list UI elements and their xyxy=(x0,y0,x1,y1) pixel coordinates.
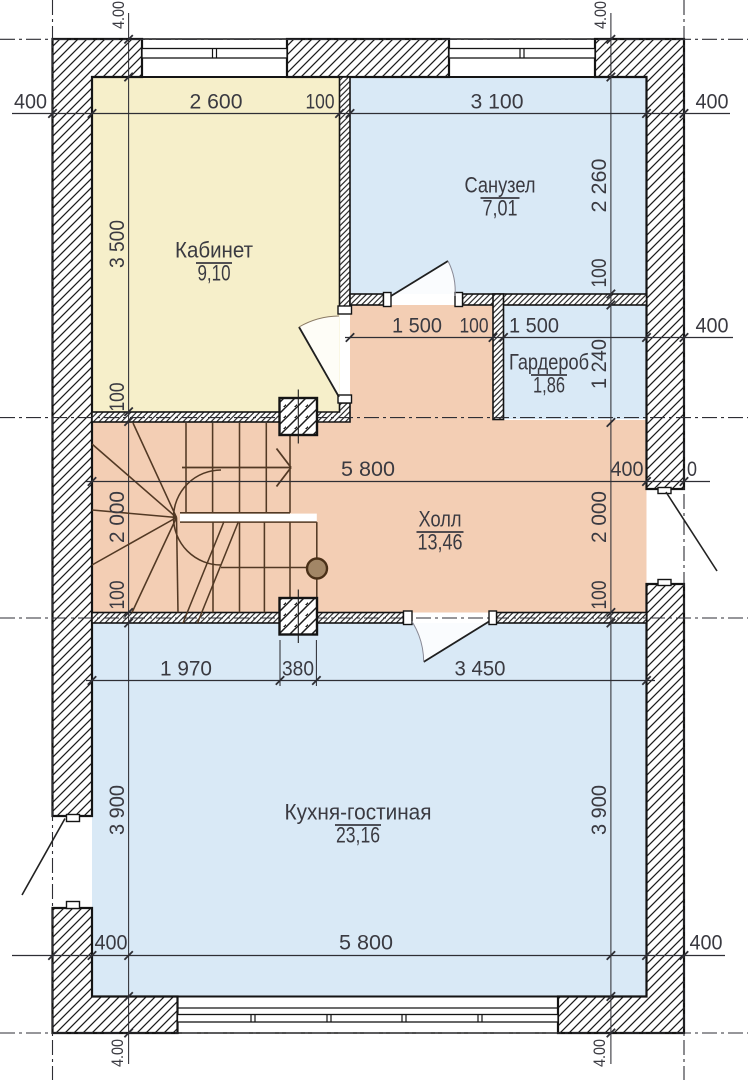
svg-text:100: 100 xyxy=(106,383,129,412)
svg-text:2 260: 2 260 xyxy=(588,159,611,213)
svg-text:1,86: 1,86 xyxy=(533,373,565,398)
svg-text:380: 380 xyxy=(282,658,314,681)
svg-text:400: 400 xyxy=(690,932,723,955)
svg-text:1 970: 1 970 xyxy=(160,658,212,681)
svg-text:3 900: 3 900 xyxy=(588,785,611,835)
svg-text:100: 100 xyxy=(588,259,611,288)
svg-text:3 450: 3 450 xyxy=(455,658,506,681)
svg-text:400: 400 xyxy=(95,932,128,955)
svg-text:9,10: 9,10 xyxy=(198,261,231,286)
svg-text:400: 400 xyxy=(611,458,644,481)
svg-text:0: 0 xyxy=(687,458,697,481)
svg-text:1 500: 1 500 xyxy=(509,315,559,338)
svg-text:3 900: 3 900 xyxy=(106,785,129,835)
svg-text:4.00: 4.00 xyxy=(108,1039,127,1067)
svg-text:Кухня-гостиная: Кухня-гостиная xyxy=(285,800,432,825)
svg-text:1 240: 1 240 xyxy=(588,339,611,389)
svg-text:5 800: 5 800 xyxy=(341,458,395,481)
svg-text:400: 400 xyxy=(696,315,729,338)
svg-text:4.00: 4.00 xyxy=(591,1,610,29)
svg-text:3 100: 3 100 xyxy=(471,91,524,114)
svg-text:Кабинет: Кабинет xyxy=(175,238,253,263)
svg-text:100: 100 xyxy=(588,581,611,610)
svg-text:23,16: 23,16 xyxy=(336,823,380,848)
svg-text:7,01: 7,01 xyxy=(483,196,518,221)
svg-text:4.00: 4.00 xyxy=(109,1,128,29)
svg-text:2 600: 2 600 xyxy=(190,91,243,114)
svg-text:100: 100 xyxy=(306,91,335,114)
svg-text:13,46: 13,46 xyxy=(418,530,463,555)
svg-text:400: 400 xyxy=(14,91,47,114)
svg-text:100: 100 xyxy=(460,315,489,338)
svg-text:3 500: 3 500 xyxy=(106,220,129,268)
svg-text:Холл: Холл xyxy=(419,507,462,532)
svg-text:4.00: 4.00 xyxy=(590,1039,609,1067)
svg-text:Санузел: Санузел xyxy=(465,173,536,198)
svg-text:100: 100 xyxy=(106,581,129,610)
svg-text:1 500: 1 500 xyxy=(392,315,442,338)
svg-text:2 000: 2 000 xyxy=(588,491,611,543)
svg-text:5 800: 5 800 xyxy=(339,932,393,955)
svg-text:2 000: 2 000 xyxy=(106,491,129,543)
svg-text:400: 400 xyxy=(696,91,729,114)
svg-text:Гардероб: Гардероб xyxy=(509,350,589,375)
